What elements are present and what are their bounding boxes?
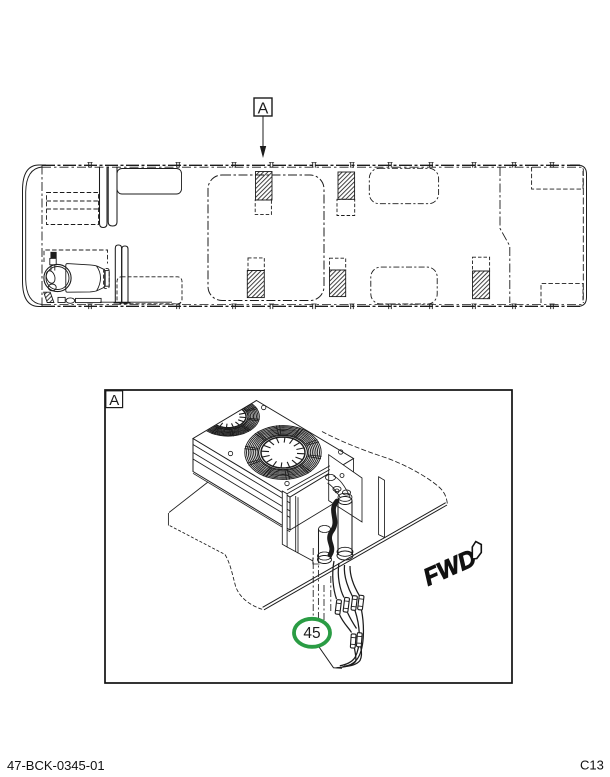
- svg-text:47-BCK-0345-01: 47-BCK-0345-01: [7, 758, 105, 773]
- svg-text:A: A: [109, 392, 119, 409]
- svg-text:C13: C13: [580, 758, 604, 773]
- svg-text:FWD: FWD: [419, 545, 480, 592]
- svg-text:A: A: [258, 100, 269, 117]
- svg-text:45: 45: [303, 625, 320, 642]
